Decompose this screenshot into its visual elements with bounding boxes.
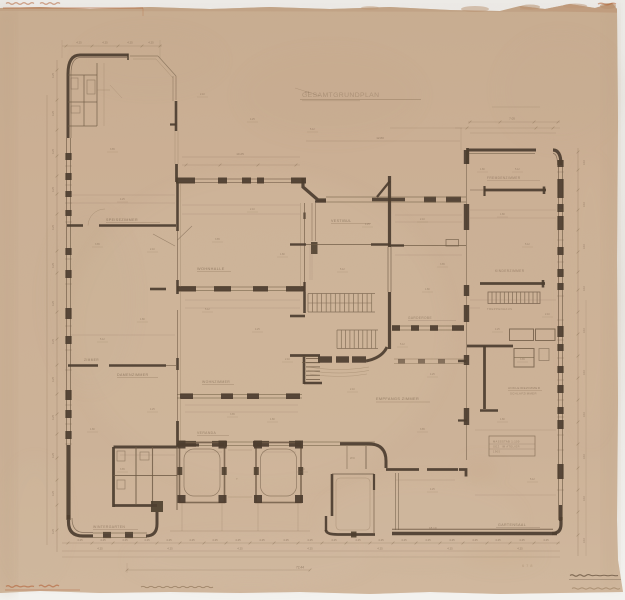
svg-text:1.80: 1.80 xyxy=(500,418,505,421)
svg-text:4.25: 4.25 xyxy=(237,547,243,551)
svg-text:4.25: 4.25 xyxy=(307,547,313,551)
svg-text:4.25: 4.25 xyxy=(519,538,525,542)
svg-text:4.25: 4.25 xyxy=(543,538,549,542)
svg-text:SCHLAFZIMMER: SCHLAFZIMMER xyxy=(510,392,537,396)
svg-text:ANKLEIDEZIMMER: ANKLEIDEZIMMER xyxy=(508,386,541,390)
svg-text:2.10: 2.10 xyxy=(350,388,355,391)
svg-text:3.10: 3.10 xyxy=(582,159,586,165)
svg-text:5.12: 5.12 xyxy=(340,268,345,271)
svg-text:4.25: 4.25 xyxy=(378,538,384,542)
svg-text:3.65: 3.65 xyxy=(120,468,125,471)
svg-text:4.25: 4.25 xyxy=(250,118,255,121)
svg-text:4.25: 4.25 xyxy=(144,538,150,542)
svg-text:4.25: 4.25 xyxy=(51,262,55,268)
svg-text:4.25: 4.25 xyxy=(51,72,55,78)
svg-text:1.80: 1.80 xyxy=(140,318,145,321)
svg-text:WOHNZIMMER: WOHNZIMMER xyxy=(202,380,230,384)
svg-text:4.25: 4.25 xyxy=(51,300,55,306)
svg-text:4.25: 4.25 xyxy=(51,376,55,382)
svg-text:1905: 1905 xyxy=(493,450,501,454)
svg-text:2.10: 2.10 xyxy=(285,358,290,361)
svg-text:3.10: 3.10 xyxy=(582,285,586,291)
svg-text:4.25: 4.25 xyxy=(51,490,55,496)
svg-text:4.25: 4.25 xyxy=(307,538,313,542)
svg-text:2.10: 2.10 xyxy=(545,313,550,316)
svg-text:GARDEROBE: GARDEROBE xyxy=(408,316,432,320)
svg-text:4.25: 4.25 xyxy=(77,538,83,542)
svg-text:3.10: 3.10 xyxy=(582,327,586,333)
svg-text:3.10: 3.10 xyxy=(582,495,586,501)
svg-text:1.80: 1.80 xyxy=(480,168,485,171)
svg-text:3.65: 3.65 xyxy=(230,413,235,416)
svg-text:18.10: 18.10 xyxy=(429,526,437,530)
svg-text:4.25: 4.25 xyxy=(212,538,218,542)
svg-text:5.12: 5.12 xyxy=(205,308,210,311)
svg-text:4.25: 4.25 xyxy=(495,538,501,542)
svg-text:1.80: 1.80 xyxy=(90,428,95,431)
svg-text:4.25: 4.25 xyxy=(51,224,55,230)
svg-text:4.25: 4.25 xyxy=(259,538,265,542)
svg-text:4.25: 4.25 xyxy=(51,338,55,344)
svg-text:4.25: 4.25 xyxy=(377,547,383,551)
svg-text:4.4: 4.4 xyxy=(305,90,309,94)
svg-text:5.12: 5.12 xyxy=(525,243,530,246)
svg-text:ZIMMER: ZIMMER xyxy=(84,358,99,362)
svg-text:4.25: 4.25 xyxy=(150,408,155,411)
svg-text:4.25: 4.25 xyxy=(365,223,370,226)
svg-text:3.10: 3.10 xyxy=(582,369,586,375)
svg-text:VERANDA: VERANDA xyxy=(197,431,217,435)
svg-text:4.25: 4.25 xyxy=(51,186,55,192)
svg-text:MASSSTAB 1:100: MASSSTAB 1:100 xyxy=(493,440,520,444)
svg-text:4.25: 4.25 xyxy=(51,110,55,116)
svg-text:3.10: 3.10 xyxy=(582,243,586,249)
svg-text:4.25: 4.25 xyxy=(472,538,478,542)
svg-text:1.80: 1.80 xyxy=(500,213,505,216)
svg-text:SPEISEZIMMER: SPEISEZIMMER xyxy=(106,218,138,222)
svg-text:4.25: 4.25 xyxy=(51,414,55,420)
svg-text:2.10: 2.10 xyxy=(250,208,255,211)
svg-text:4.25: 4.25 xyxy=(97,547,103,551)
svg-text:4.25: 4.25 xyxy=(122,538,128,542)
svg-text:3.65: 3.65 xyxy=(215,238,220,241)
svg-text:5.12: 5.12 xyxy=(310,128,315,131)
svg-text:4.25: 4.25 xyxy=(51,148,55,154)
svg-text:3.10: 3.10 xyxy=(582,201,586,207)
svg-text:4.25: 4.25 xyxy=(148,41,154,45)
svg-text:5.12: 5.12 xyxy=(400,343,405,346)
svg-text:GEZ. IM ATELIER: GEZ. IM ATELIER xyxy=(493,445,520,449)
svg-text:5.12: 5.12 xyxy=(100,338,105,341)
svg-text:10.25: 10.25 xyxy=(236,152,244,156)
svg-text:4.25: 4.25 xyxy=(283,538,289,542)
svg-text:4.25: 4.25 xyxy=(449,538,455,542)
svg-text:3.65: 3.65 xyxy=(110,148,115,151)
svg-text:4.25: 4.25 xyxy=(255,328,260,331)
svg-text:2.10: 2.10 xyxy=(300,468,305,471)
svg-text:4.25: 4.25 xyxy=(167,547,173,551)
svg-text:1.80: 1.80 xyxy=(280,253,285,256)
svg-text:4.25: 4.25 xyxy=(127,41,133,45)
svg-text:T: T xyxy=(236,477,238,481)
svg-text:3.65: 3.65 xyxy=(440,263,445,266)
svg-text:7.05: 7.05 xyxy=(509,117,515,121)
svg-text:KINDERZIMMER: KINDERZIMMER xyxy=(495,269,525,273)
svg-text:4.25: 4.25 xyxy=(235,538,241,542)
svg-text:12.80: 12.80 xyxy=(376,136,384,140)
svg-text:5.12: 5.12 xyxy=(530,478,535,481)
svg-text:4.25: 4.25 xyxy=(189,538,195,542)
svg-text:4.25: 4.25 xyxy=(355,538,361,542)
svg-text:3.10: 3.10 xyxy=(582,411,586,417)
svg-text:WINTERGARTEN: WINTERGARTEN xyxy=(93,525,125,529)
svg-text:72.44: 72.44 xyxy=(296,566,304,570)
svg-text:4.25: 4.25 xyxy=(425,538,431,542)
svg-text:2.10: 2.10 xyxy=(150,248,155,251)
svg-text:4.25: 4.25 xyxy=(401,538,407,542)
svg-text:TREPPENHAUS: TREPPENHAUS xyxy=(487,307,512,311)
svg-text:WC: WC xyxy=(350,456,355,460)
svg-text:4.25: 4.25 xyxy=(495,328,500,331)
svg-text:VESTIBUL: VESTIBUL xyxy=(331,219,352,223)
svg-text:4.25: 4.25 xyxy=(51,528,55,534)
svg-text:4.25: 4.25 xyxy=(447,547,453,551)
svg-text:3.10: 3.10 xyxy=(582,453,586,459)
svg-text:4.25: 4.25 xyxy=(100,538,106,542)
svg-text:6 7 8: 6 7 8 xyxy=(522,563,533,568)
svg-text:4.25: 4.25 xyxy=(76,41,82,45)
svg-text:3.10: 3.10 xyxy=(582,537,586,543)
svg-text:4.25: 4.25 xyxy=(166,538,172,542)
svg-text:4.25: 4.25 xyxy=(51,452,55,458)
svg-text:1.80: 1.80 xyxy=(270,418,275,421)
svg-text:4.25: 4.25 xyxy=(430,488,435,491)
svg-text:4.25: 4.25 xyxy=(120,198,125,201)
svg-text:EMPFANGS ZIMMER: EMPFANGS ZIMMER xyxy=(376,397,419,401)
svg-text:3.65: 3.65 xyxy=(520,358,525,361)
svg-text:5.12: 5.12 xyxy=(515,168,520,171)
svg-text:4.25: 4.25 xyxy=(102,41,108,45)
svg-text:2.10: 2.10 xyxy=(420,218,425,221)
svg-text:GARTENSAAL: GARTENSAAL xyxy=(498,523,526,527)
svg-text:4.25: 4.25 xyxy=(430,373,435,376)
svg-text:GESAMTGRUNDPLAN: GESAMTGRUNDPLAN xyxy=(302,92,379,99)
svg-text:DAMENZIMMER: DAMENZIMMER xyxy=(117,373,149,377)
svg-text:4.25: 4.25 xyxy=(517,547,523,551)
svg-text:FREMDENZIMMER: FREMDENZIMMER xyxy=(487,176,521,180)
svg-text:2.10: 2.10 xyxy=(200,93,205,96)
svg-text:3.65: 3.65 xyxy=(420,428,425,431)
svg-text:4.25: 4.25 xyxy=(331,538,337,542)
svg-text:3.65: 3.65 xyxy=(95,243,100,246)
svg-text:1.80: 1.80 xyxy=(425,288,430,291)
svg-text:WOHNHALLE: WOHNHALLE xyxy=(197,267,225,271)
